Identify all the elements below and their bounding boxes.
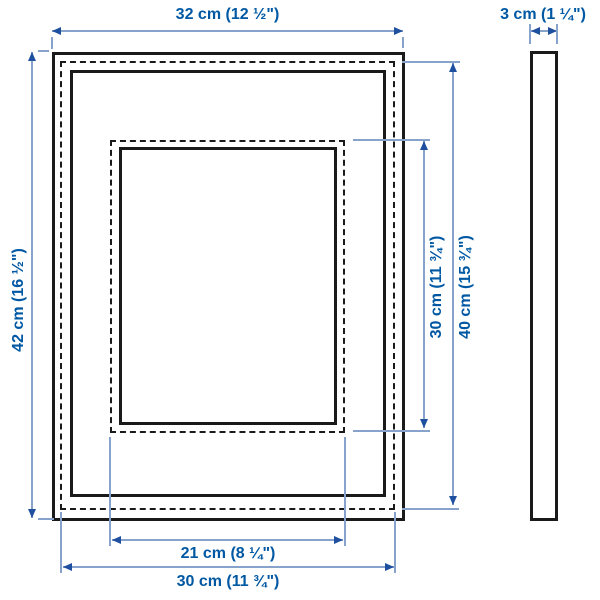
frame-dimension-diagram: 32 cm (12 ½") 3 cm (1 ¼") 42 cm (16 ½") … xyxy=(0,0,600,600)
mat-opening-inner-edge xyxy=(119,147,337,425)
dim-line-picture-width-without-mat xyxy=(63,566,394,568)
arrowhead-up-icon xyxy=(420,141,428,150)
extension-line xyxy=(353,430,430,432)
dim-label-outer-width: 32 cm (12 ½") xyxy=(52,5,403,25)
arrowhead-down-icon xyxy=(28,509,36,518)
extension-line xyxy=(402,61,460,63)
dim-line-outer-height xyxy=(31,52,33,518)
extension-line xyxy=(344,437,346,546)
extension-line xyxy=(353,139,430,141)
arrowhead-up-icon xyxy=(28,52,36,61)
extension-tick xyxy=(402,37,404,48)
dim-label-picture-width-with-mat: 21 cm (8 ¼") xyxy=(115,544,341,564)
arrowhead-left-icon xyxy=(112,536,121,544)
dim-line-picture-width-with-mat xyxy=(112,539,343,541)
dim-line-outer-width xyxy=(52,30,403,32)
arrowhead-left-icon xyxy=(52,27,61,35)
dim-label-picture-height-without-mat: 40 cm (15 ¾") xyxy=(456,235,476,339)
arrowhead-right-icon xyxy=(394,27,403,35)
dim-line-picture-height-without-mat xyxy=(452,63,454,505)
extension-tick xyxy=(556,24,558,44)
arrowhead-right-icon xyxy=(385,563,394,571)
arrowhead-down-icon xyxy=(449,496,457,505)
dim-label-picture-width-without-mat: 30 cm (11 ¾") xyxy=(115,572,341,592)
extension-tick xyxy=(38,518,54,520)
arrowhead-up-icon xyxy=(449,63,457,72)
extension-tick xyxy=(51,37,53,49)
extension-tick xyxy=(38,50,49,52)
dim-line-picture-height-with-mat xyxy=(423,141,425,428)
extension-line xyxy=(109,437,111,546)
frame-side-profile xyxy=(530,51,558,521)
dim-label-outer-height: 42 cm (16 ½") xyxy=(9,248,29,352)
arrowhead-right-icon xyxy=(334,536,343,544)
extension-line xyxy=(402,508,459,510)
extension-tick xyxy=(529,24,531,44)
dim-label-depth: 3 cm (1 ¼") xyxy=(480,5,600,25)
dim-label-picture-height-with-mat: 30 cm (11 ¾") xyxy=(427,236,447,339)
extension-line xyxy=(60,512,62,573)
arrowhead-left-icon xyxy=(63,563,72,571)
arrowhead-down-icon xyxy=(420,419,428,428)
arrowhead-left-icon xyxy=(531,27,540,35)
extension-line xyxy=(394,512,396,573)
